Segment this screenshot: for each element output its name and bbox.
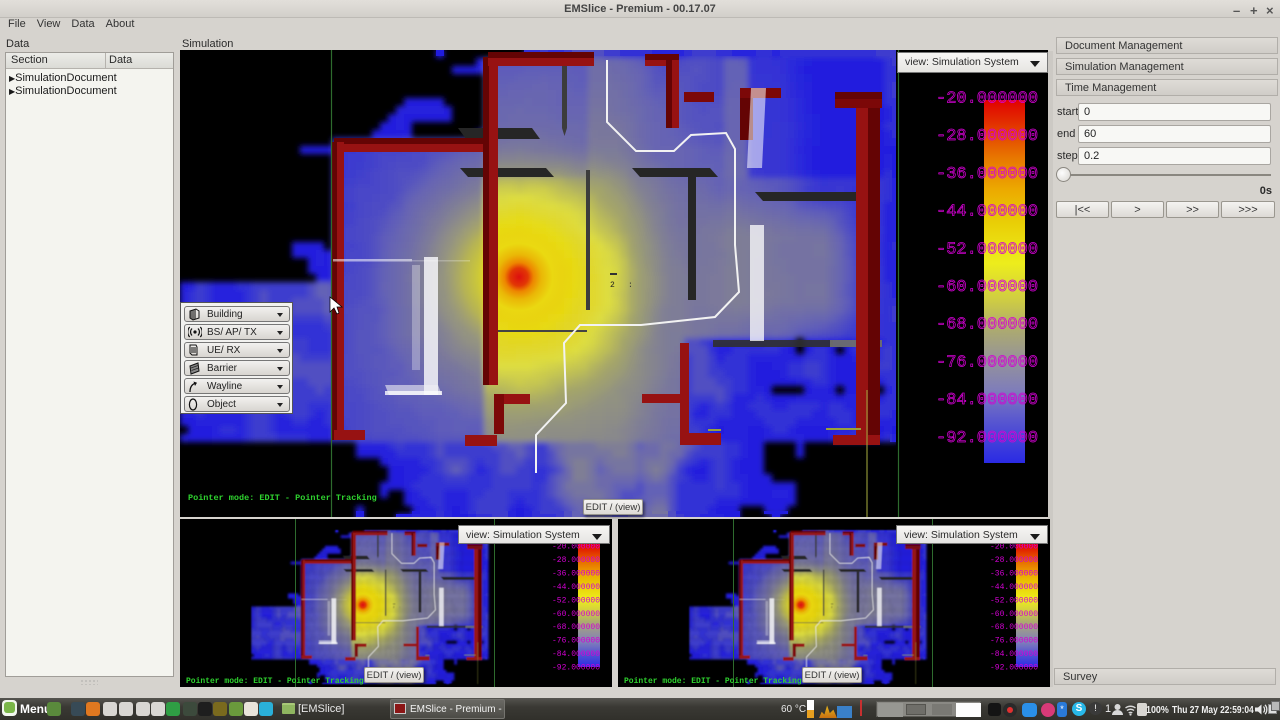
svg-text:-92.000000: -92.000000 (552, 664, 600, 673)
svg-text:-36.000000: -36.000000 (990, 569, 1038, 578)
svg-text:-36.000000: -36.000000 (552, 569, 600, 578)
svg-text:-76.000000: -76.000000 (936, 353, 1038, 372)
svg-text:-52.000000: -52.000000 (552, 596, 600, 605)
svg-text:-84.000000: -84.000000 (990, 650, 1038, 659)
svg-text:-28.000000: -28.000000 (990, 556, 1038, 565)
svg-text:-68.000000: -68.000000 (990, 623, 1038, 632)
svg-text:-20.000000: -20.000000 (936, 90, 1038, 109)
svg-text:-68.000000: -68.000000 (936, 316, 1038, 335)
svg-text:-60.000000: -60.000000 (990, 610, 1038, 619)
svg-text:-92.000000: -92.000000 (936, 429, 1038, 448)
svg-text:-44.000000: -44.000000 (552, 583, 600, 592)
svg-text:-92.000000: -92.000000 (990, 664, 1038, 673)
svg-text:-44.000000: -44.000000 (936, 203, 1038, 222)
svg-text:-52.000000: -52.000000 (936, 240, 1038, 259)
svg-text:-44.000000: -44.000000 (990, 583, 1038, 592)
svg-text:-76.000000: -76.000000 (552, 637, 600, 646)
svg-text:-52.000000: -52.000000 (990, 596, 1038, 605)
svg-text:-76.000000: -76.000000 (990, 637, 1038, 646)
svg-text:-68.000000: -68.000000 (552, 623, 600, 632)
svg-text:-36.000000: -36.000000 (936, 165, 1038, 184)
svg-text:-28.000000: -28.000000 (936, 127, 1038, 146)
svg-text:-28.000000: -28.000000 (552, 556, 600, 565)
svg-text:-60.000000: -60.000000 (552, 610, 600, 619)
svg-text:-84.000000: -84.000000 (552, 650, 600, 659)
svg-text:-60.000000: -60.000000 (936, 278, 1038, 297)
svg-text:-84.000000: -84.000000 (936, 391, 1038, 410)
